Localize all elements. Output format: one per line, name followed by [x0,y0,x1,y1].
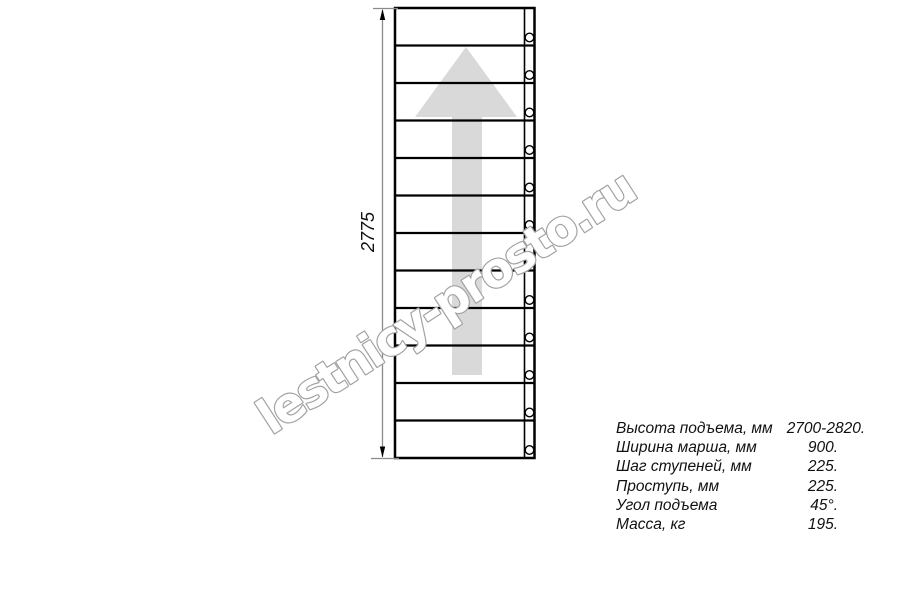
spec-value: 225. [808,477,838,496]
screw-hole [525,333,534,342]
spec-row: Высота подъема, мм2700-2820. [616,419,838,438]
spec-label: Угол подъема [616,496,717,515]
screw-hole [525,446,534,455]
watermark: lestnicy-prosto.ru [247,160,644,445]
spec-table: Высота подъема, мм2700-2820.Ширина марша… [616,419,838,534]
spec-row: Угол подъема45°. [616,496,838,515]
ladder-drawing-page: 2775 lestnicy-prosto.ru Высота подъема, … [0,0,900,600]
spec-label: Проступь, мм [616,477,719,496]
screw-hole [525,146,534,155]
screw-hole [525,296,534,305]
screw-hole [525,71,534,80]
dimension-arrow-down-icon [380,447,385,458]
spec-value: 225. [808,457,838,476]
spec-label: Шаг ступеней, мм [616,457,752,476]
screw-hole [525,108,534,117]
spec-label: Ширина марша, мм [616,438,757,457]
spec-row: Шаг ступеней, мм225. [616,457,838,476]
spec-row: Проступь, мм225. [616,477,838,496]
screw-hole [525,408,534,417]
spec-value: 45°. [810,496,838,515]
dimension-arrow-up-icon [380,9,385,20]
spec-value: 900. [808,438,838,457]
spec-value: 2700-2820. [787,419,865,438]
dimension-label: 2775 [358,211,378,253]
screw-hole [525,371,534,380]
spec-row: Масса, кг195. [616,515,838,534]
screw-hole [525,33,534,42]
spec-label: Высота подъема, мм [616,419,773,438]
screw-hole [525,183,534,192]
spec-row: Ширина марша, мм900. [616,438,838,457]
spec-value: 195. [808,515,838,534]
spec-label: Масса, кг [616,515,685,534]
